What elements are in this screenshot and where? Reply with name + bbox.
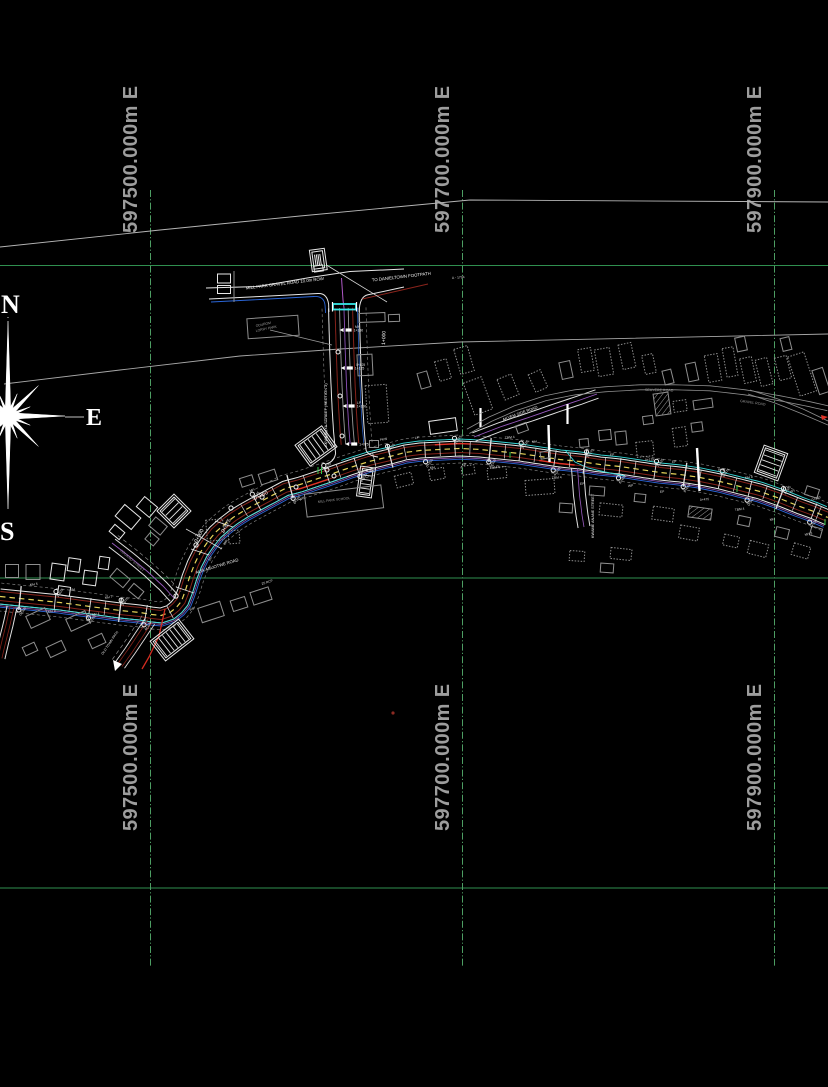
svg-text:AKWABUYA STREET (SECTION 3): AKWABUYA STREET (SECTION 3) bbox=[323, 383, 328, 447]
svg-text:N: N bbox=[1, 290, 20, 319]
svg-text:597900.000m E: 597900.000m E bbox=[744, 683, 766, 831]
svg-text:E: E bbox=[86, 405, 102, 431]
svg-text:0+825: 0+825 bbox=[356, 363, 365, 367]
svg-text:MH: MH bbox=[355, 325, 361, 329]
svg-text:SEKYERE ROAD: SEKYERE ROAD bbox=[645, 388, 674, 393]
svg-text:597700.000m E: 597700.000m E bbox=[432, 683, 454, 831]
svg-text:597500.000m E: 597500.000m E bbox=[120, 683, 142, 831]
svg-text:1+000: 1+000 bbox=[381, 331, 387, 345]
svg-text:KWAME ANANE STREET: KWAME ANANE STREET bbox=[591, 493, 595, 538]
svg-text:1+125: 1+125 bbox=[355, 367, 365, 371]
svg-text:597500.000m E: 597500.000m E bbox=[120, 85, 142, 233]
svg-text:597700.000m E: 597700.000m E bbox=[432, 85, 454, 233]
svg-text:S: S bbox=[0, 517, 14, 546]
svg-text:1+150: 1+150 bbox=[354, 329, 364, 333]
svg-text:1+100: 1+100 bbox=[357, 405, 367, 409]
svg-text:PKW: PKW bbox=[718, 467, 727, 472]
svg-text:597900.000m E: 597900.000m E bbox=[744, 85, 766, 233]
svg-text:0+125: 0+125 bbox=[645, 457, 655, 462]
svg-text:TBM 4: TBM 4 bbox=[552, 475, 562, 480]
svg-text:1+075: 1+075 bbox=[359, 443, 369, 447]
